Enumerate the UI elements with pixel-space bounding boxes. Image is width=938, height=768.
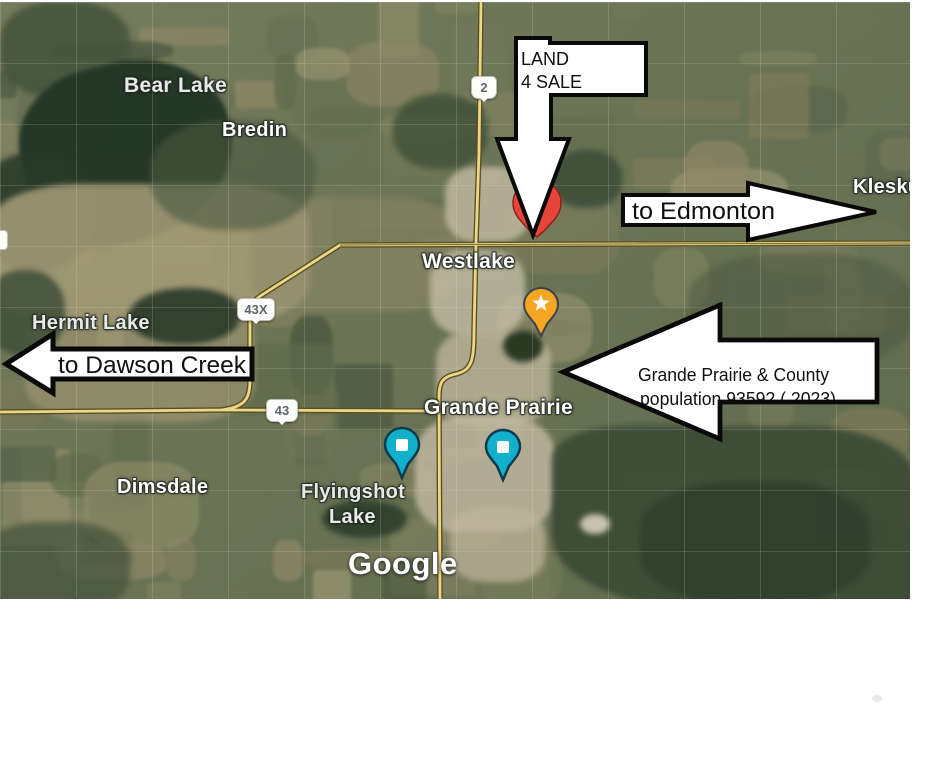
to-dawson-creek-label: to Dawson Creek — [58, 352, 247, 379]
gp-county-line2: population 93592 ( 2023) — [640, 389, 836, 409]
square-icon — [396, 439, 408, 451]
teal-pin-1-marker[interactable] — [385, 428, 419, 478]
teal-pin-2-marker[interactable] — [486, 430, 520, 480]
page: 2 43X 43 Bear Lake Bredin Klesku Westlak… — [0, 0, 938, 768]
grande-prairie-county-arrow: Grande Prairie & County population 93592… — [563, 305, 877, 439]
satellite-map[interactable]: 2 43X 43 Bear Lake Bredin Klesku Westlak… — [0, 2, 910, 599]
to-dawson-creek-arrow: to Dawson Creek — [6, 334, 252, 393]
land-sale-line1: LAND — [521, 49, 569, 69]
star-pin-marker[interactable] — [524, 288, 558, 336]
annotations-layer: LAND 4 SALE to Edmonton to Dawson Creek … — [0, 2, 910, 599]
land-sale-line2: 4 SALE — [521, 72, 582, 92]
to-edmonton-label: to Edmonton — [632, 198, 775, 225]
artifact-smudge — [872, 695, 882, 702]
to-edmonton-arrow: to Edmonton — [623, 183, 876, 240]
gp-county-line1: Grande Prairie & County — [638, 365, 829, 385]
square-icon — [497, 441, 509, 453]
